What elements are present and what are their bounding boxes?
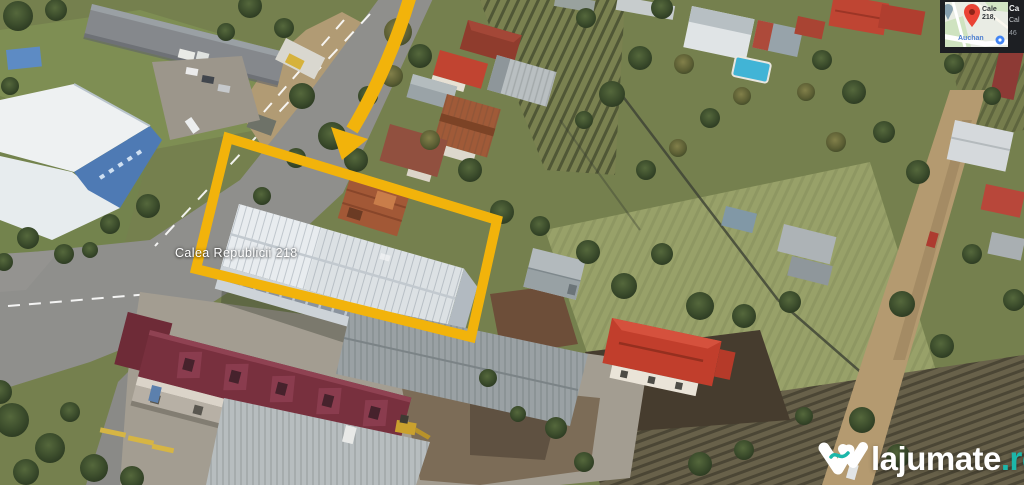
aerial-scene xyxy=(0,0,1024,485)
minimap-thumbnail: Cale 218, Auchan xyxy=(945,2,1008,47)
lajumate-logo-icon xyxy=(818,436,868,482)
watermark-brand: lajumate xyxy=(871,440,1001,478)
watermark-tld: .ro xyxy=(1001,440,1024,478)
auchan-poi-icon xyxy=(996,36,1005,45)
map-info-line-3: 46 xyxy=(1009,30,1017,37)
pool xyxy=(732,56,771,83)
minimap-poi-label: Auchan xyxy=(958,35,984,42)
street-label: Calea Republicii 218 xyxy=(175,246,298,260)
map-info-line-2: Cal xyxy=(1009,17,1020,24)
lajumate-watermark: lajumate.ro xyxy=(818,436,1024,482)
map-panel: Cale 218, Auchan Ca Cal 46 xyxy=(940,0,1024,53)
minimap-pin-label: Cale 218, xyxy=(982,6,997,22)
aerial-listing-photo: Calea Republicii 218 Cale 218, xyxy=(0,0,1024,485)
map-info-line-1: Ca xyxy=(1009,4,1019,13)
